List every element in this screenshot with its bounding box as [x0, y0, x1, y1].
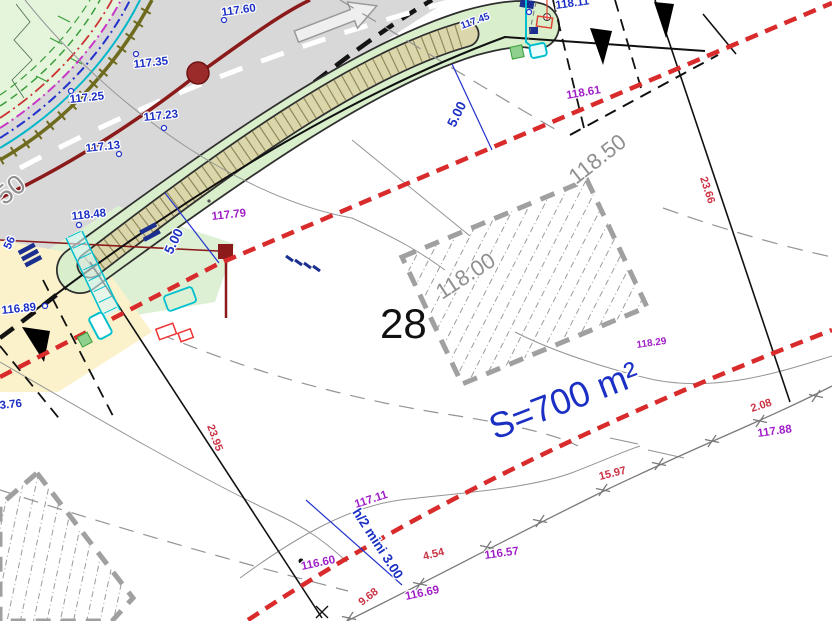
plan-drawing: 117.60 117.35 117.25 117.23 117.13 118.4… — [0, 0, 832, 621]
segment-length-label: 4.54 — [422, 546, 447, 563]
spot-height-label: 117.88 — [757, 423, 793, 440]
segment-length-label: 9.68 — [356, 586, 380, 609]
segment-length-label: 23.95 — [204, 423, 225, 453]
spot-height-label: 116.69 — [404, 584, 440, 603]
spot-height-label: 117.79 — [211, 207, 247, 223]
setback-line-lower — [248, 330, 832, 620]
right-boundary — [655, 0, 790, 402]
dimension-label: 5.00 — [444, 99, 469, 129]
triangle-marker-icon — [654, 2, 674, 38]
plot-number: 28 — [380, 300, 427, 347]
elevation-label: 3.76 — [0, 398, 23, 412]
left-boundary — [90, 262, 322, 618]
building-envelope-neighbour — [0, 473, 133, 621]
segment-length-label: 15.97 — [598, 465, 628, 483]
cadastral-plan-canvas: 117.60 117.35 117.25 117.23 117.13 118.4… — [0, 0, 832, 621]
spot-height-label: 117.11 — [353, 489, 390, 511]
segment-length-label: 2.08 — [749, 397, 773, 415]
utility-box-icon — [529, 42, 547, 58]
contour-label: 118.50 — [564, 129, 631, 189]
elevation-label: 118.11 — [555, 0, 591, 12]
triangle-marker-icon — [590, 28, 612, 65]
area-label: S=700 m² — [483, 353, 644, 448]
manhole-icon — [187, 62, 209, 84]
dimension-label: h/2 mini 3.00 — [349, 505, 406, 581]
green-box-icon — [510, 45, 524, 59]
point-dot — [207, 199, 210, 202]
spot-height-label: 118.61 — [565, 84, 602, 102]
segment-length-label: 23.66 — [697, 175, 717, 205]
spot-height-label: 118.29 — [636, 336, 668, 351]
